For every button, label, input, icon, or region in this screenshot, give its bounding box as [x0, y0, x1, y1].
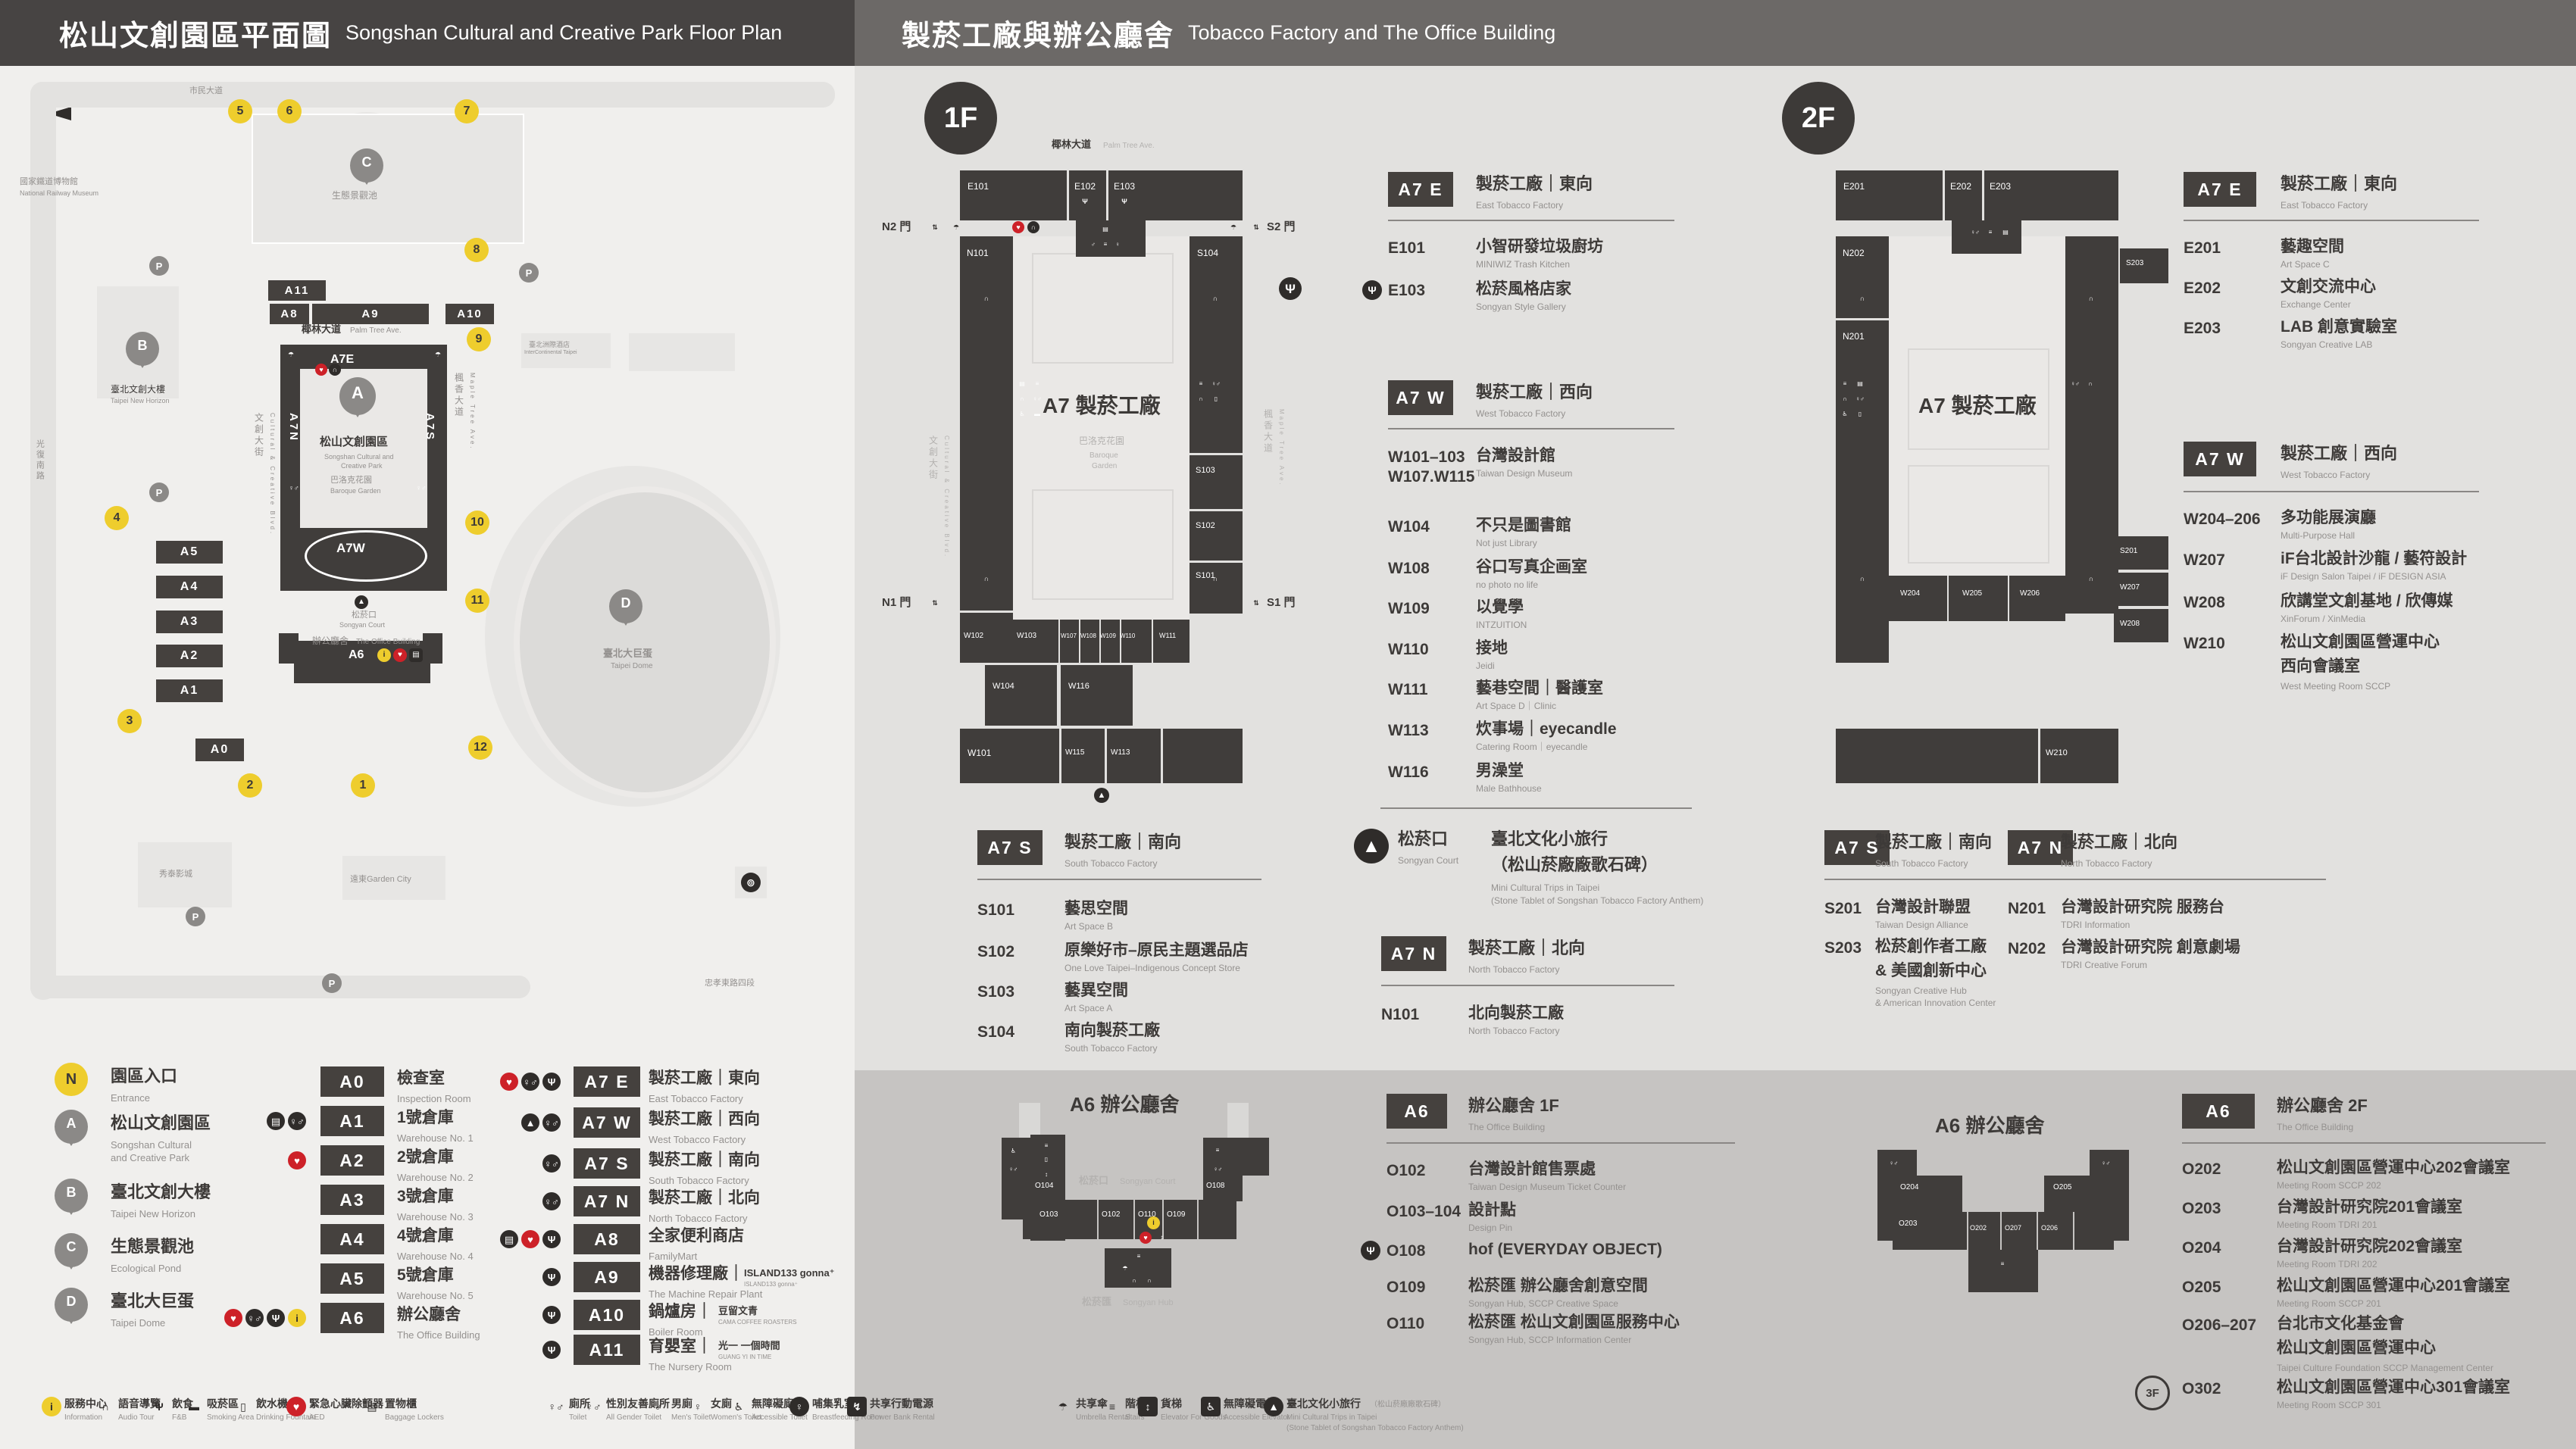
- strip-label-zh-sub: （松山菸廠廠歌石碑）: [1370, 1401, 1446, 1409]
- dome-label-en: Taipei Dome: [611, 662, 653, 670]
- f1-a7s-badge: A7 S: [977, 830, 1043, 865]
- strip-aed-icon: ♥: [286, 1397, 306, 1416]
- legend-badge-A0: A0: [320, 1066, 384, 1097]
- f2-a6-room-name-zh: 台灣設計研究院201會議室: [2277, 1198, 2462, 1216]
- a6f1-pillar-l: [1019, 1103, 1040, 1138]
- stairs-icon: ≡: [1100, 239, 1111, 250]
- legend-badge-A1: A1: [320, 1106, 384, 1136]
- court-label-en: Songyan Court: [339, 621, 385, 629]
- f1-a7n-room-name-zh: 北向製菸工廠: [1468, 1004, 1564, 1023]
- legend-label-en: Boiler Room: [649, 1327, 703, 1338]
- strip-power-icon: ↯: [847, 1397, 867, 1416]
- legend-sub-brand-en: CAMA COFFEE ROASTERS: [718, 1319, 797, 1326]
- a6f2-o205-box: [2044, 1176, 2114, 1212]
- legend-label-zh: 製菸工廠｜東向: [649, 1070, 760, 1088]
- legend-label-zh: 2號倉庫: [397, 1148, 454, 1166]
- strip-acc-icon: ♿: [729, 1397, 749, 1416]
- audio-icon: ∩: [1129, 1276, 1140, 1286]
- f1-mid-bar: [1013, 620, 1190, 663]
- f1-a7s-room-name-en: One Love Taipei–Indigenous Concept Store: [1064, 963, 1240, 973]
- audio-icon: ∩: [2085, 379, 2096, 389]
- court-icon: ▲: [521, 1113, 539, 1132]
- f1-room: W109: [1100, 633, 1116, 640]
- a6f1-hub-zh: 松菸匯: [1082, 1297, 1111, 1308]
- f1-room: E103: [1114, 182, 1135, 192]
- f1-a7w-badge: A7 W: [1388, 380, 1453, 415]
- sep: [1197, 1200, 1199, 1239]
- f2-a7n-title-en: North Tobacco Factory: [2061, 859, 2152, 869]
- f1-a7w-room-name-en: Catering Room｜eyecandle: [1476, 742, 1587, 752]
- legend-label-zh: 臺北文創大樓: [111, 1183, 211, 1202]
- court-item-en1: Mini Cultural Trips in Taipei: [1491, 883, 1599, 893]
- f1-ccb-en: Cultural & Creative Blvd.: [943, 436, 949, 558]
- court-icon: ▲: [1094, 788, 1109, 803]
- toilet-icon: ♀♂: [415, 482, 427, 494]
- f1-room: W107: [1061, 633, 1077, 640]
- f2-room: W205: [1962, 589, 1982, 598]
- f1-bottom-bar: [960, 729, 1243, 783]
- bag-icon: ▤: [2000, 227, 2011, 238]
- sep: [1947, 576, 1949, 621]
- f2-a7e-room-code: E202: [2184, 279, 2221, 298]
- f1-a7w-room-name-zh: 藝巷空間｜醫護室: [1476, 679, 1603, 698]
- strip-women-icon: ♀: [688, 1397, 708, 1416]
- f2-room: S201: [2120, 547, 2137, 555]
- fnb-icon: Ψ: [542, 1230, 561, 1248]
- legend-badge-A4: A4: [320, 1224, 384, 1254]
- baroque-label-zh: 巴洛克花園: [330, 476, 372, 485]
- legend-label-zh: 3號倉庫: [397, 1188, 454, 1206]
- a6f2-protrusion: [1968, 1250, 2038, 1292]
- court-item-en2: (Stone Tablet of Songshan Tobacco Factor…: [1491, 896, 1703, 906]
- f2-a7w-rule: [2184, 491, 2479, 492]
- f2-a7w-room-name-zh: 欣講堂文創基地 / 欣傳媒: [2281, 592, 2453, 611]
- stairs-icon: ≡: [1196, 379, 1206, 389]
- f1-baroque-zh: 巴洛克花園: [1079, 436, 1124, 446]
- map-pin-D: D: [609, 589, 642, 632]
- toilet-icon: ♀♂: [1970, 227, 1980, 238]
- legend-label-en: Warehouse No. 3: [397, 1212, 474, 1223]
- a6f2-room: O207: [2005, 1224, 2021, 1232]
- strip-bag-icon: ▤: [362, 1397, 382, 1416]
- legend-sub-brand-en: GUANG YI IN TIME: [718, 1354, 771, 1361]
- f1-a6-room-name-zh: hof (EVERYDAY OBJECT): [1468, 1241, 1662, 1259]
- a6-wing-l: [279, 633, 299, 664]
- f1-a7s-rule: [977, 879, 1261, 880]
- sep: [2008, 576, 2009, 621]
- court-item-zh2: （松山菸廠廠歌石碑）: [1491, 856, 1658, 875]
- legend-badge-A10: A10: [574, 1300, 640, 1330]
- sep: [1079, 620, 1080, 663]
- drink-icon: ▯: [1041, 1154, 1052, 1165]
- f1-a7s-room-name-zh: 藝異空間: [1064, 982, 1128, 1000]
- legend-label-zh: 松山文創園區: [111, 1114, 211, 1133]
- sep: [1120, 620, 1121, 663]
- f2-mid-bar: [1889, 576, 2065, 621]
- f1-a7e-room-code: E103: [1388, 282, 1425, 300]
- f1-a7s-room-code: S101: [977, 901, 1014, 920]
- f1-a7s-room-name-zh: 原樂好市–原民主題選品店: [1064, 942, 1249, 960]
- f1-a7e-title-zh: 製菸工廠｜東向: [1476, 175, 1593, 194]
- f1-a7w-room-name-en: Male Bathhouse: [1476, 784, 1542, 794]
- audio-icon: ∩: [1144, 1276, 1155, 1286]
- f1-top-bar: [960, 170, 1243, 220]
- strip-umb-icon: ☂: [1053, 1397, 1073, 1416]
- f2-room: W207: [2120, 583, 2140, 592]
- f2-a7s-room-name-zh: & 美國創新中心: [1875, 962, 1987, 980]
- header-left: 松山文創園區平面圖 Songshan Cultural and Creative…: [0, 0, 914, 66]
- f1-a7w-room-name-en: Not just Library: [1476, 539, 1537, 548]
- legend-badge-A6: A6: [320, 1303, 384, 1333]
- toilet-icon: ♀♂: [1211, 379, 1221, 389]
- f2-a7n-rule: [2008, 879, 2326, 880]
- aed-icon: ♥: [393, 648, 407, 662]
- f1-baroque-en2: Garden: [1092, 462, 1117, 470]
- a6-building-map: [294, 641, 430, 683]
- f2-a7e-title-zh: 製菸工廠｜東向: [2281, 175, 2397, 194]
- f1-a7w-room-code: W113: [1388, 722, 1429, 740]
- f1-room: W113: [1111, 748, 1130, 757]
- f1-a7w-title-en: West Tobacco Factory: [1476, 409, 1565, 419]
- legend-pin-C: C: [55, 1233, 88, 1276]
- strip-court-icon: ▲: [1264, 1397, 1283, 1416]
- f1-a6-rule: [1386, 1142, 1735, 1144]
- a6f1-bottom-bar: [1023, 1200, 1236, 1239]
- road-left: [30, 82, 56, 1000]
- audio-icon: ∩: [1856, 292, 1868, 304]
- f2-a7e-room-name-zh: 文創交流中心: [2281, 278, 2376, 296]
- f2-a7w-room-name-zh: 多功能展演廳: [2281, 509, 2376, 527]
- strip-bf-icon: ♀: [789, 1397, 809, 1416]
- bar-a4: A4: [156, 576, 223, 598]
- f1-palm-ave-en: Palm Tree Ave.: [1103, 142, 1155, 150]
- stairs-icon: ≡: [1212, 1145, 1223, 1156]
- legend-badge-A2: A2: [320, 1145, 384, 1176]
- f2-a7w-room-name-en: XinForum / XinMedia: [2281, 614, 2365, 624]
- audio-icon: ∩: [1840, 394, 1850, 404]
- drink-icon: ▯: [1855, 409, 1865, 420]
- newhorizon-label-zh: 臺北文創大樓: [111, 385, 165, 395]
- f1-a7s-room-name-zh: 南向製菸工廠: [1064, 1022, 1160, 1040]
- header-left-title-zh: 松山文創園區平面圖: [59, 12, 332, 54]
- office-label-en: The Office Building: [356, 638, 420, 646]
- legend-label-en: Warehouse No. 2: [397, 1173, 474, 1184]
- a6f1-court-zh: 松菸口: [1079, 1176, 1108, 1187]
- legend-sub-brand-en: ISLAND133 gonna⁺: [744, 1282, 798, 1288]
- strip-info-icon: i: [42, 1397, 61, 1416]
- f1-a7e-room-name-en: Songyan Style Gallery: [1476, 302, 1566, 312]
- sep: [1106, 170, 1108, 220]
- f2-a6-room-code: O202: [2182, 1160, 2221, 1179]
- f2-a6-room-name-zh: 松山文創園區營運中心201會議室: [2277, 1277, 2510, 1295]
- bar-a9: A9: [312, 304, 429, 324]
- legend-label-zh: 全家便利商店: [649, 1227, 744, 1245]
- men-icon: ♂: [1088, 239, 1099, 250]
- f1-room: S103: [1196, 466, 1215, 475]
- map-a7s-label: A7S: [423, 413, 436, 442]
- f2-a6-room-name-en: Meeting Room TDRI 202: [2277, 1260, 2377, 1269]
- toilet-icon: ♀♂: [245, 1309, 264, 1327]
- legend-label-en: Taipei Dome: [111, 1318, 165, 1329]
- f1-a7w-rule: [1388, 428, 1674, 429]
- sep: [1059, 729, 1061, 783]
- f2-a6-room-name-en: Meeting Room SCCP 201: [2277, 1299, 2381, 1309]
- legend-label-en: The Office Building: [397, 1330, 480, 1341]
- maple-ave-label-en: Maple Tree Ave.: [468, 373, 475, 451]
- hotel-label-zh: 臺北洲際酒店: [529, 341, 570, 348]
- stairs-icon: ≡: [1985, 227, 1996, 238]
- f2-center-title: A7 製菸工廠: [1918, 394, 2037, 417]
- f2-a6-badge: A6: [2182, 1094, 2255, 1129]
- f2-a7n-room-code: N201: [2008, 900, 2046, 918]
- f1-room: E102: [1074, 182, 1096, 192]
- a6f1-room: O109: [1167, 1210, 1185, 1219]
- f2-room: W206: [2020, 589, 2040, 598]
- bar-a1: A1: [156, 679, 223, 702]
- f1-gate-s2: S2 門: [1267, 221, 1296, 234]
- fnb-icon: Ψ: [1118, 195, 1130, 208]
- f1-room: W103: [1017, 632, 1036, 640]
- f1-a7w-room-name-en: Taiwan Design Museum: [1476, 469, 1572, 479]
- legend-label-en: Warehouse No. 1: [397, 1133, 474, 1145]
- f1-a7w-room-code: W111: [1388, 681, 1428, 699]
- umb-icon: ☂: [950, 221, 962, 233]
- f1-a7w-room-name-en: Jeidi: [1476, 661, 1495, 671]
- a6f2-room: O204: [1900, 1183, 1918, 1191]
- sep: [1097, 1200, 1099, 1239]
- aed-icon: ♥: [224, 1309, 242, 1327]
- legend-badge-A7W: A7 W: [574, 1107, 640, 1138]
- legend-label-en: South Tobacco Factory: [649, 1176, 749, 1187]
- f1-room: W101: [968, 748, 991, 758]
- road-top: [30, 82, 835, 108]
- legend-badge-A9: A9: [574, 1262, 640, 1292]
- parking: P: [322, 973, 342, 993]
- umb-icon: ☂: [1227, 221, 1240, 233]
- legend-badge-A7S: A7 S: [574, 1148, 640, 1179]
- legend-label-zh: 製菸工廠｜西向: [649, 1110, 760, 1129]
- strip-audio-icon: ∩: [95, 1397, 115, 1416]
- audio-icon: ∩: [1209, 292, 1221, 304]
- bike-icon: ⊚: [741, 873, 761, 892]
- f1-a7w-room-name-zh: 接地: [1476, 639, 1508, 657]
- toilet-icon: ♀♂: [542, 1113, 561, 1132]
- f2-a6-room-name-zh: 台北市文化基金會: [2277, 1315, 2404, 1333]
- f2-a7s-room-code: S203: [1824, 939, 1862, 957]
- f1-palm-ave-zh: 椰林大道: [1052, 139, 1091, 151]
- stairs-icon: ≡: [1032, 379, 1043, 389]
- legend-badge-A11: A11: [574, 1335, 640, 1365]
- umb-icon: ☂: [1120, 1263, 1130, 1274]
- f1-a7w-room-code: W108: [1388, 560, 1430, 578]
- fnb-icon: Ψ: [1361, 1241, 1380, 1260]
- f1-a7e-rule: [1388, 220, 1674, 221]
- fnb-icon: Ψ: [1362, 280, 1382, 300]
- railway-museum-label-zh: 國家鐵道博物館: [20, 177, 78, 186]
- a6f1-room: O103: [1039, 1210, 1058, 1219]
- bar-a0: A0: [195, 739, 244, 761]
- a6f2-bottom-bar: [1893, 1212, 2114, 1250]
- f2-a7e-room-name-zh: LAB 創意實驗室: [2281, 318, 2397, 336]
- legend-label-en: East Tobacco Factory: [649, 1094, 743, 1105]
- f2-a6-room-code: O206–207: [2182, 1316, 2256, 1335]
- bag-icon: ▤: [267, 1112, 285, 1130]
- f2-room: E201: [1843, 182, 1865, 192]
- aed-icon: ♥: [521, 1230, 539, 1248]
- palm-ave-label-en: Palm Tree Ave.: [350, 326, 402, 335]
- a6f1-room: O104: [1035, 1182, 1053, 1190]
- road-bottom: [30, 976, 530, 998]
- sep: [1058, 620, 1060, 663]
- f1-a6-title-en: The Office Building: [1468, 1123, 1545, 1132]
- f1-room: W116: [1068, 682, 1089, 691]
- toilet-icon: ♀♂: [1855, 394, 1865, 404]
- pond-label: 生態景觀池: [332, 191, 377, 201]
- f2-room: W210: [2046, 748, 2068, 757]
- toilet-icon: ♀♂: [1212, 1163, 1224, 1175]
- toilet-icon: ♀♂: [521, 1073, 539, 1091]
- f1-a7w-room-code: W116: [1388, 764, 1429, 782]
- legend-badge-A8: A8: [574, 1224, 640, 1254]
- f1-gate-s1: S1 門: [1267, 597, 1296, 610]
- f1-a7w-room-name-en: INTZUITION: [1476, 620, 1527, 630]
- f1-gate-n2: N2 門: [882, 221, 911, 234]
- audio-icon: ∩: [1027, 221, 1039, 233]
- f2-a6-room-name-en: Meeting Room SCCP 202: [2277, 1181, 2381, 1191]
- legend-label-en: Songshan Cultural: [111, 1140, 192, 1151]
- fnb-icon: Ψ: [542, 1073, 561, 1091]
- f1-a7n-title-en: North Tobacco Factory: [1468, 965, 1560, 975]
- f1-room: S104: [1197, 248, 1218, 258]
- stairs-icon: ≡: [1840, 379, 1850, 389]
- railway-museum-label-en: National Railway Museum: [20, 189, 98, 197]
- f2-a7e-room-name-en: Exchange Center: [2281, 300, 2351, 310]
- f2-a7s-room-name-zh: 台灣設計聯盟: [1875, 898, 1971, 917]
- bar-a8: A8: [270, 304, 309, 324]
- legend-label-zh: 臺北大巨蛋: [111, 1292, 194, 1311]
- audio-icon: ∩: [980, 292, 993, 304]
- f1-maple-en: Maple Tree Ave.: [1277, 409, 1284, 487]
- strip-label-zh: 共享行動電源: [870, 1398, 933, 1410]
- sep: [1190, 509, 1243, 511]
- floor-2f-badge: 2F: [1782, 82, 1855, 155]
- f2-room: W208: [2120, 620, 2140, 628]
- entrance-9: 9: [467, 327, 491, 351]
- f2-a6-room-name-zh: 松山文創園區營運中心301會議室: [2277, 1379, 2510, 1397]
- f2-a6-room-name-en: Meeting Room SCCP 301: [2277, 1401, 2381, 1410]
- f1-room: W115: [1065, 748, 1084, 757]
- f1-a7e-room-name-zh: 小智研發垃圾廚坊: [1476, 238, 1603, 256]
- acc-icon: ♿: [1840, 409, 1850, 420]
- strip-elevA-icon: ♿: [1201, 1397, 1221, 1416]
- f1-a7s-title-zh: 製菸工廠｜南向: [1064, 833, 1181, 852]
- f1-center-title: A7 製菸工廠: [1043, 394, 1161, 417]
- f1-a7w-room-code: W110: [1388, 641, 1429, 659]
- sep: [1161, 729, 1163, 783]
- acc-icon: ♿: [1017, 409, 1027, 420]
- a6f1-pillar-r: [1227, 1103, 1249, 1138]
- f2-room: E202: [1950, 182, 1971, 192]
- a6f2-room: O202: [1970, 1224, 1987, 1232]
- f2-a7e-room-name-zh: 藝趣空間: [2281, 238, 2344, 256]
- fnb-icon: Ψ: [542, 1341, 561, 1359]
- f2-a6-title-en: The Office Building: [2277, 1123, 2353, 1132]
- legend-label-zh: 製菸工廠｜南向: [649, 1151, 760, 1170]
- sep: [1105, 729, 1107, 783]
- bag-icon: ▤: [500, 1230, 518, 1248]
- dome-label-zh: 臺北大巨蛋: [603, 648, 652, 660]
- strip-men-icon: ♂: [649, 1397, 668, 1416]
- f1-a7w-room-name-en: no photo no life: [1476, 580, 1538, 590]
- f1-gate-n1: N1 門: [882, 597, 911, 610]
- legend-sub-brand: 豆留文青: [718, 1306, 758, 1317]
- aed-icon: ♥: [1140, 1232, 1152, 1244]
- a6f1-room: O102: [1102, 1210, 1120, 1219]
- f1-a7n-title-zh: 製菸工廠｜北向: [1468, 939, 1585, 958]
- strip-elevG-icon: ↕: [1138, 1397, 1158, 1416]
- a6f1-right-wing: [1240, 1138, 1269, 1176]
- f1-a6-room-name-en: Songyan Hub, SCCP Creative Space: [1468, 1299, 1618, 1309]
- toilet-icon: ♀♂: [288, 482, 300, 494]
- audio-icon: ∩: [2085, 292, 2097, 304]
- map-pin-C: C: [350, 148, 383, 192]
- f2-a7s-room-name-en: Taiwan Design Alliance: [1875, 920, 1968, 930]
- swap-icon: ⇅: [1250, 221, 1262, 233]
- f2-a6-title-zh: 辦公廳舍 2F: [2277, 1097, 2368, 1116]
- entrance-12: 12: [468, 735, 492, 760]
- parking: P: [186, 907, 205, 926]
- f1-a7e-room-name-en: MINIWIZ Trash Kitchen: [1476, 260, 1570, 270]
- strip-fnb-icon: Ψ: [149, 1397, 169, 1416]
- f1-a7e-room-name-zh: 松菸風格店家: [1476, 280, 1571, 298]
- legend-badge-A3: A3: [320, 1185, 384, 1215]
- f2-a7n-room-name-zh: 台灣設計研究院 創意劇場: [2061, 938, 2240, 957]
- f1-a7s-room-name-en: Art Space B: [1064, 922, 1113, 932]
- f1-a7w-room-name-zh: 台灣設計館: [1476, 447, 1555, 465]
- sep: [1836, 318, 1889, 320]
- women-icon: ♀: [1112, 239, 1123, 250]
- f2-a7e-title-en: East Tobacco Factory: [2281, 201, 2368, 211]
- header-left-title-en: Songshan Cultural and Creative Park Floo…: [345, 21, 782, 45]
- f2-a7e-rule: [2184, 220, 2479, 221]
- f1-a6-room-name-en: Taiwan Design Museum Ticket Counter: [1468, 1182, 1626, 1192]
- f2-room: S203: [2126, 259, 2143, 267]
- f1-a7s-room-name-zh: 藝思空間: [1064, 900, 1128, 918]
- sep: [1943, 170, 1945, 220]
- audio-icon: ∩: [1017, 394, 1027, 404]
- aed-icon: ♥: [288, 1151, 306, 1170]
- f2-a6-room-name-zh: 台灣設計研究院202會議室: [2277, 1238, 2462, 1256]
- f2-a6-room-name-zh: 松山文創園區營運中心: [2277, 1339, 2436, 1357]
- f2-a7w-title-zh: 製菸工廠｜西向: [2281, 445, 2397, 464]
- guangfu-rd-label: 光復南路: [35, 439, 44, 482]
- sep: [1190, 453, 1243, 455]
- court-icon: ▲: [355, 595, 368, 609]
- legend-label-en: The Nursery Room: [649, 1362, 732, 1373]
- f2-a6-rule: [2182, 1142, 2546, 1144]
- sep: [2037, 1212, 2038, 1250]
- entrance-11: 11: [465, 589, 489, 613]
- info-icon: i: [1147, 1216, 1160, 1229]
- f1-room: E101: [968, 182, 989, 192]
- f2-a7s-room-name-zh: 松菸創作者工廠: [1875, 938, 1987, 956]
- legend-label-en: Entrance: [111, 1093, 150, 1104]
- strip-label-en: Power Bank Rental: [870, 1413, 935, 1422]
- f2-a7e-room-name-en: Songyan Creative LAB: [2281, 340, 2372, 350]
- f2-a7e-room-code: E203: [2184, 320, 2221, 338]
- f1-a7w-room-name-zh: 男澡堂: [1476, 762, 1524, 780]
- f1-a7w-room-name-zh: 以覺學: [1476, 598, 1524, 617]
